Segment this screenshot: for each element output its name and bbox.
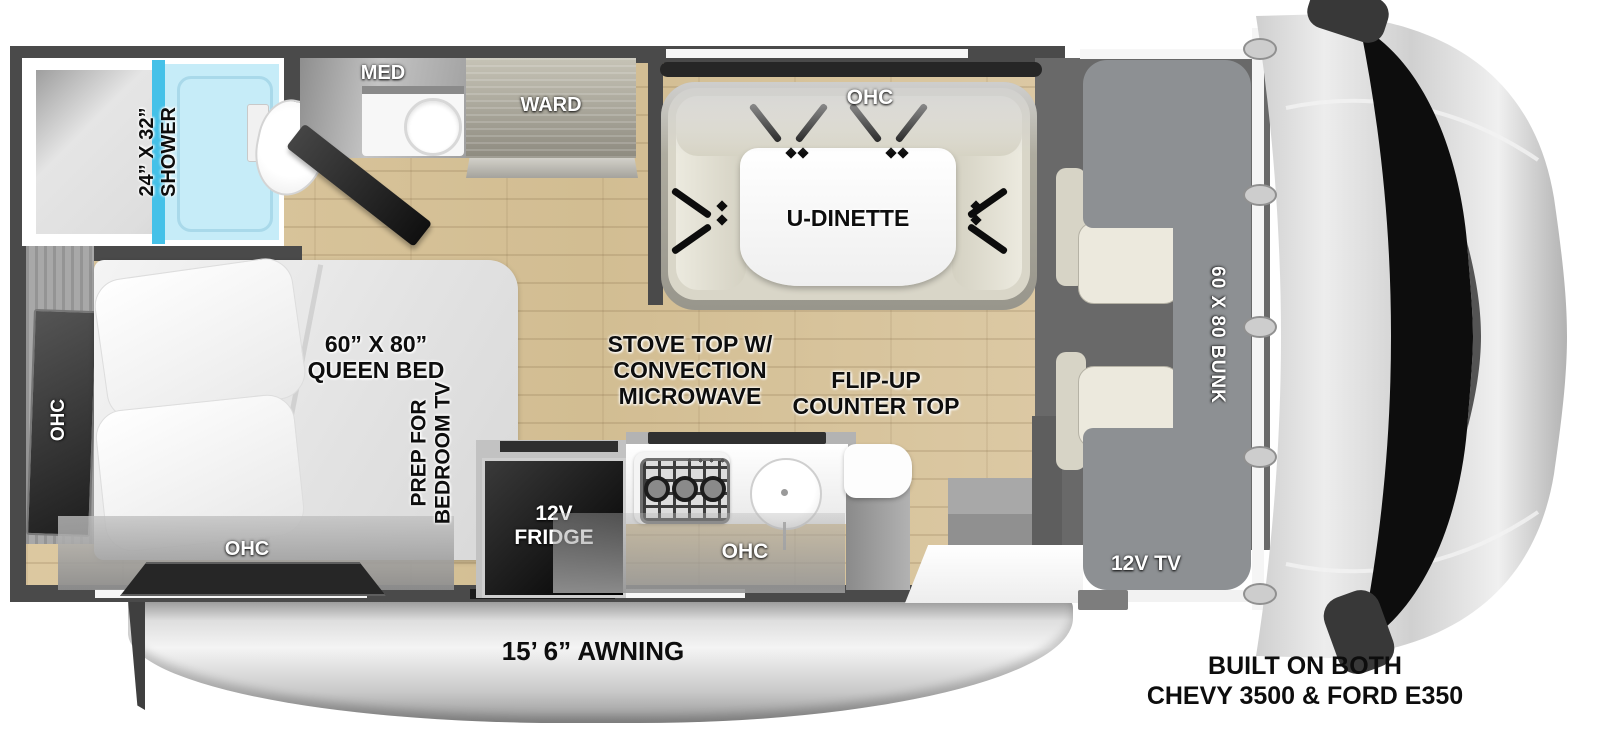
burner-icon — [644, 476, 670, 502]
entry-step-lower — [948, 514, 1038, 550]
kitchen-ohc-overlay — [553, 513, 845, 593]
shower-size-text: 24” X 32” — [136, 86, 158, 218]
med-sink-backsplash — [362, 86, 464, 94]
entry-step-upper — [948, 478, 1038, 514]
wardrobe-shelf — [466, 158, 638, 178]
med-label: MED — [338, 62, 428, 84]
bath-sink-icon — [404, 98, 462, 156]
bedroom-bottom-ohc-label: OHC — [216, 538, 278, 560]
queen-bed-label: 60” X 80” QUEEN BED — [258, 332, 494, 384]
cap-hinge-icon — [1243, 583, 1277, 605]
bunk-label: 60 X 80 BUNK — [1198, 225, 1228, 445]
fridge-vent — [500, 441, 618, 452]
rv-floorplan-diagram: 24” X 32” SHOWER MED WARD OHC 60” X 80” … — [0, 0, 1600, 733]
entry-landing — [905, 545, 1083, 603]
window-strip-top-dinette — [666, 49, 968, 58]
prep-tv-text-2: BEDROOM TV — [431, 366, 455, 541]
chassis-note: BUILT ON BOTH CHEVY 3500 & FORD E350 — [1085, 652, 1525, 711]
flip-up-counter — [844, 444, 912, 498]
dinette-ohc-label: OHC — [838, 86, 902, 110]
awning-label: 15’ 6” AWNING — [343, 637, 843, 666]
u-dinette-label: U-DINETTE — [760, 206, 936, 232]
ward-label: WARD — [506, 94, 596, 116]
cap-hinge-icon — [1243, 184, 1277, 206]
bed-text: QUEEN BED — [258, 358, 494, 384]
cab-seat-top — [1078, 222, 1180, 304]
stove-text-2: CONVECTION — [580, 358, 800, 384]
bedroom-left-ohc-label: OHC — [48, 380, 72, 460]
stove-text-3: MICROWAVE — [580, 384, 800, 410]
shower-label: 24” X 32” SHOWER — [136, 86, 188, 218]
window-strip-top-cab — [1080, 49, 1252, 59]
flip-up-text-1: FLIP-UP — [770, 368, 982, 394]
bedroom-window-tray — [120, 562, 386, 596]
flip-up-label: FLIP-UP COUNTER TOP — [770, 368, 982, 420]
burner-icon — [672, 476, 698, 502]
stove-label: STOVE TOP W/ CONVECTION MICROWAVE — [580, 332, 800, 409]
kitchen-ohc-label: OHC — [714, 540, 776, 564]
sink-drain-icon — [781, 489, 788, 496]
burner-icon — [700, 476, 726, 502]
bed-size-text: 60” X 80” — [258, 332, 494, 358]
shower-text: SHOWER — [158, 86, 180, 218]
chassis-note-line-1: BUILT ON BOTH — [1085, 652, 1525, 682]
bunk-top — [1083, 60, 1183, 228]
flip-up-text-2: COUNTER TOP — [770, 394, 982, 420]
cap-hinge-icon — [1243, 446, 1277, 468]
dinette-valance — [660, 62, 1042, 77]
stove-knobs — [684, 457, 726, 464]
chassis-note-line-2: CHEVY 3500 & FORD E350 — [1085, 682, 1525, 712]
bunk-tv-label: 12V TV — [1096, 552, 1196, 576]
awning-left-edge — [128, 598, 145, 710]
stove-text-1: STOVE TOP W/ — [580, 332, 800, 358]
cap-hinge-icon — [1243, 38, 1277, 60]
kitchen-backsplash — [648, 432, 826, 444]
cap-hinge-icon — [1243, 316, 1277, 338]
prep-tv-text-1: PREP FOR — [408, 366, 432, 541]
entry-outside-step — [1078, 590, 1128, 610]
prep-tv-label: PREP FOR BEDROOM TV — [408, 366, 458, 541]
